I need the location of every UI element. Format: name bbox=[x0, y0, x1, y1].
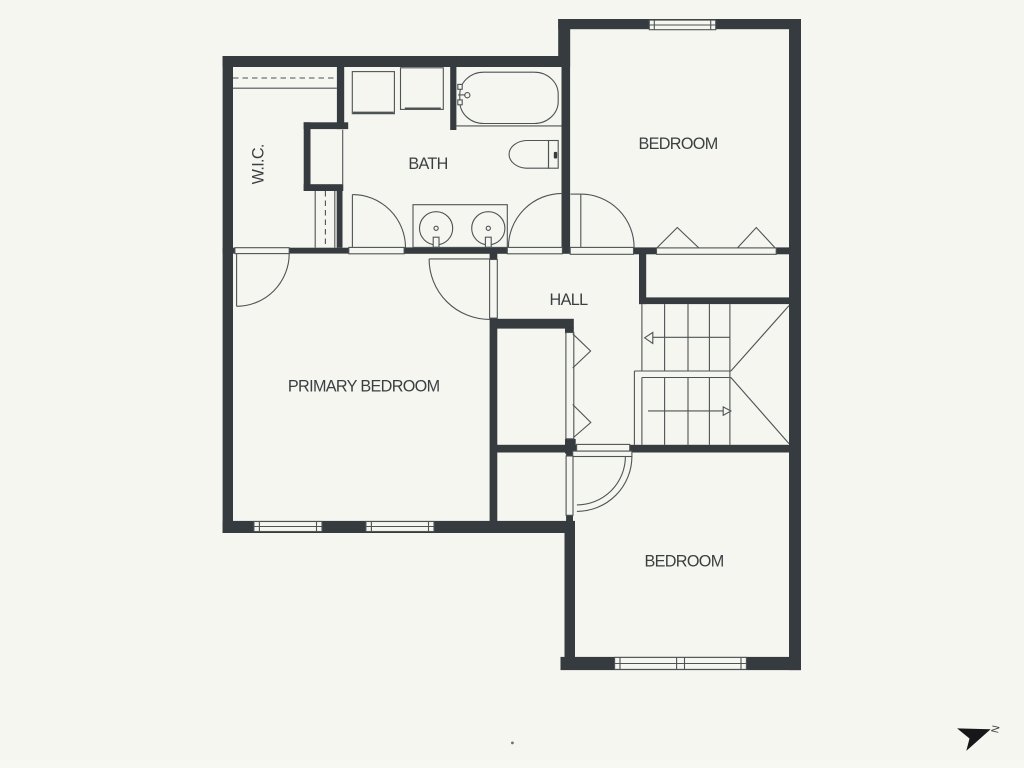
svg-text:BEDROOM: BEDROOM bbox=[644, 552, 723, 570]
svg-text:PRIMARY BEDROOM: PRIMARY BEDROOM bbox=[288, 378, 440, 396]
svg-text:HALL: HALL bbox=[550, 291, 589, 309]
svg-text:BATH: BATH bbox=[408, 155, 447, 173]
svg-text:BEDROOM: BEDROOM bbox=[638, 135, 717, 153]
svg-text:W.I.C.: W.I.C. bbox=[250, 144, 268, 184]
